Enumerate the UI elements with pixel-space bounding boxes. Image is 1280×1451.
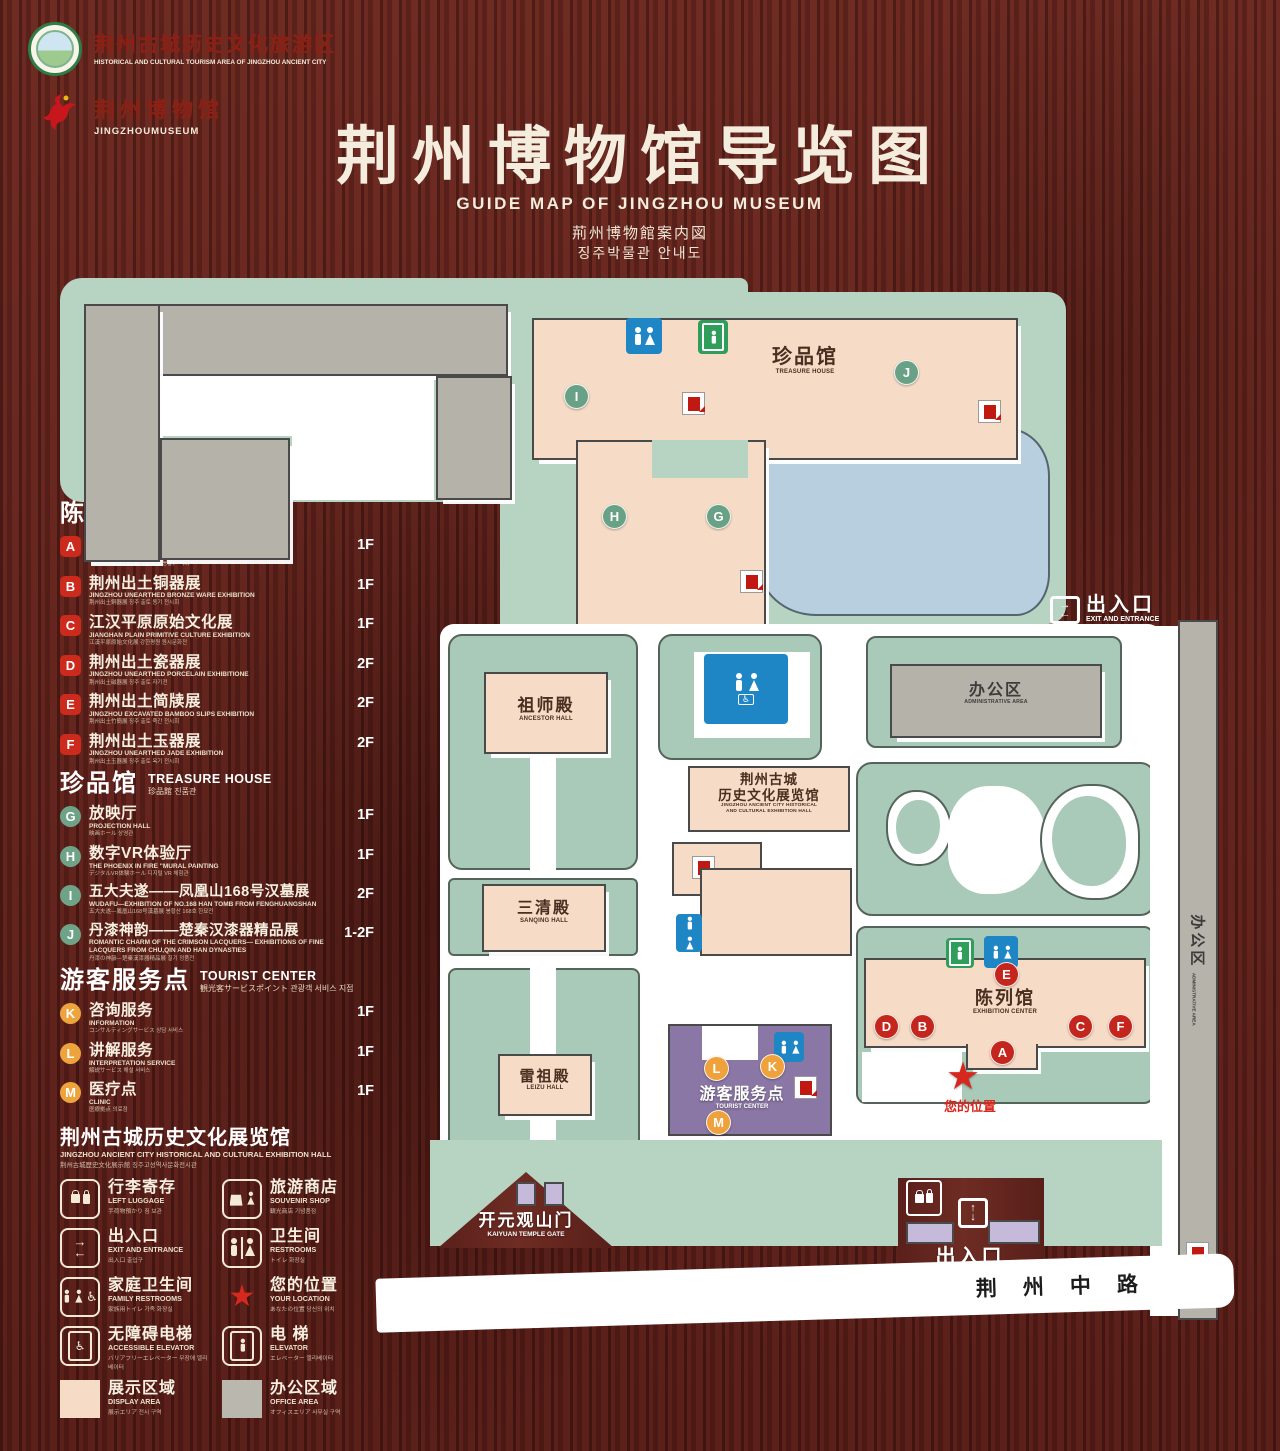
item-title: 讲解服务 xyxy=(89,1042,349,1060)
facility-restrooms: 卫生间 RESTROOMS トイレ 화장실 xyxy=(222,1228,374,1268)
tourism-area-logo-text: 荆州古城历史文化旅游区 HISTORICAL AND CULTURAL TOUR… xyxy=(94,28,394,66)
tourism-area-name-zh: 荆州古城历史文化旅游区 xyxy=(94,28,394,57)
section-title-sub: 観光客サービスポイント 관광객 서비스 지점 xyxy=(200,984,354,994)
facility-sub: オフィスエリア 사무실 구역 xyxy=(270,1407,340,1416)
facility-sub: 展示エリア 전시 구역 xyxy=(108,1407,176,1416)
bottom-gate-right xyxy=(988,1220,1040,1244)
item-floor: 2F xyxy=(357,886,374,902)
item-sub: デジタルVR体験ホール 디지털 VR 체험관 xyxy=(89,871,349,878)
map-marker-h: H xyxy=(602,504,627,529)
facility-zh: 行李寄存 xyxy=(108,1179,176,1197)
elevator-icon xyxy=(222,1326,262,1366)
facility-zh: 旅游商店 xyxy=(270,1179,338,1197)
admin-strip-zh: 办公区 xyxy=(1189,914,1206,968)
item-floor: 1F xyxy=(357,1044,374,1060)
facility-en: SOUVENIR SHOP xyxy=(270,1196,338,1205)
exhibition-center-label: 陈列馆 EXHIBITION CENTER xyxy=(910,988,1100,1016)
facility-zh: 您的位置 xyxy=(270,1277,338,1295)
poster-title-zh: 荆州博物馆导览图 xyxy=(270,106,1010,197)
luggage-icon xyxy=(60,1179,100,1219)
restrooms-icon xyxy=(626,318,662,354)
item-en: JINGZHOU EXCAVATED BAMBOO SLIPS EXHIBITI… xyxy=(89,711,349,719)
marker-badge-e: E xyxy=(60,694,81,715)
map-marker-f: F xyxy=(1108,1014,1133,1039)
item-title: 咨询服务 xyxy=(89,1002,349,1020)
item-sub: 五大夫遂—鳳凰山168号漢墓展 봉황산 168호 한묘전 xyxy=(89,909,349,916)
item-floor: 1F xyxy=(357,1083,374,1099)
history-hall-lower-wing xyxy=(700,868,852,956)
tourist-label-en: TOURIST CENTER xyxy=(672,1104,812,1111)
item-title: 江汉平原原始文化展 xyxy=(89,614,349,632)
map-marker-m: M xyxy=(706,1110,731,1135)
poster-title-ja: 荊州博物館案内図 xyxy=(270,222,1010,243)
item-title: 荆州出土玉器展 xyxy=(89,733,349,751)
elevator-icon xyxy=(698,320,728,354)
history-hall-note: 荆州古城历史文化展览馆 JINGZHOU ANCIENT CITY HISTOR… xyxy=(60,1126,374,1169)
facility-en: LEFT LUGGAGE xyxy=(108,1196,176,1205)
facility-elevator: 电 梯 ELEVATOR エレベーター 엘리베이터 xyxy=(222,1326,374,1371)
marker-badge-l: L xyxy=(60,1043,81,1064)
admin-right-zh: 办公区 xyxy=(890,682,1102,700)
item-title: 数字VR体验厅 xyxy=(89,845,349,863)
facility-point-icon xyxy=(682,392,705,415)
treasure-house-label: 珍品馆 TREASURE HOUSE xyxy=(720,346,890,376)
item-floor: 2F xyxy=(357,695,374,711)
facility-en: EXIT AND ENTRANCE xyxy=(108,1245,183,1254)
facility-en: OFFICE AREA xyxy=(270,1397,340,1406)
admin-building-right-arm xyxy=(436,376,512,500)
admin-right-en: ADMINISTRATIVE AREA xyxy=(890,700,1102,706)
sanqing-hall-label: 三清殿 SANQING HALL xyxy=(482,900,606,925)
tourism-area-logo-icon xyxy=(28,22,82,76)
legend-item-c: C 江汉平原原始文化展 JIANGHAN PLAIN PRIMITIVE CUL… xyxy=(60,614,374,647)
poster-title-ko: 징주박물관 안내도 xyxy=(270,243,1010,263)
facility-en: ACCESSIBLE ELEVATOR xyxy=(108,1343,212,1352)
legend-item-b: B 荆州出土铜器展 JINGZHOU UNEARTHED BRONZE WARE… xyxy=(60,575,374,608)
restrooms-icon xyxy=(676,914,702,952)
item-floor: 2F xyxy=(357,656,374,672)
item-en: ROMANTIC CHARM OF THE CRIMSON LACQUERS— … xyxy=(89,939,336,955)
leizu-label-en: LEIZU HALL xyxy=(498,1085,592,1092)
facility-zh: 家庭卫生间 xyxy=(108,1277,193,1295)
facility-left-luggage: 行李寄存 LEFT LUGGAGE 手荷物預かり 짐 보관 xyxy=(60,1179,212,1219)
museum-guide-map-poster: 荆州古城历史文化旅游区 HISTORICAL AND CULTURAL TOUR… xyxy=(0,0,1280,1451)
facility-en: RESTROOMS xyxy=(270,1245,321,1254)
garden-island-right xyxy=(1052,796,1126,886)
legend-item-m: M 医疗点 CLINIC 医療拠点 의료점 1F xyxy=(60,1081,374,1114)
ancestor-hall-label: 祖师殿 ANCESTOR HALL xyxy=(484,696,608,722)
exhibition-label-zh: 陈列馆 xyxy=(910,988,1100,1009)
facility-en: YOUR LOCATION xyxy=(270,1294,338,1303)
item-sub: 解説サービス 해설 서비스 xyxy=(89,1068,349,1075)
item-sub: 荆州出土銅器展 징주 출토 동기 전시회 xyxy=(89,600,349,607)
map-marker-l: L xyxy=(704,1056,729,1081)
treasure-label-en: TREASURE HOUSE xyxy=(720,369,890,376)
marker-badge-c: C xyxy=(60,615,81,636)
item-floor: 1F xyxy=(357,616,374,632)
item-floor: 1F xyxy=(357,577,374,593)
road-label: 荆州中路 xyxy=(975,1267,1164,1303)
elevator-icon xyxy=(946,938,974,968)
legend-item-f: F 荆州出土玉器展 JINGZHOU UNEARTHED JADE EXHIBI… xyxy=(60,733,374,766)
family-restrooms-icon: ♿ xyxy=(60,1277,100,1317)
map-marker-c: C xyxy=(1068,1014,1093,1039)
legend-section-tourist-center: 游客服务点 TOURIST CENTER 観光客サービスポイント 관광객 서비스… xyxy=(60,969,374,993)
sanqing-label-en: SANQING HALL xyxy=(482,918,606,925)
tourist-center-notch xyxy=(702,1026,758,1060)
restrooms-icon xyxy=(222,1228,262,1268)
kaiyuan-gate-en: KAIYUAN TEMPLE GATE xyxy=(438,1231,614,1238)
facility-sub: トイレ 화장실 xyxy=(270,1255,321,1264)
treasure-label-zh: 珍品馆 xyxy=(720,346,890,369)
marker-badge-d: D xyxy=(60,655,81,676)
facility-sub: 観光商店 기념품점 xyxy=(270,1206,338,1215)
map-marker-j: J xyxy=(894,360,919,385)
facility-sub: エレベーター 엘리베이터 xyxy=(270,1353,333,1362)
legend-panel: 陈列馆 EXHIBITION CENTER 陳列館 진열관 A 《火中的凤凰》壁… xyxy=(60,496,374,1418)
item-en: JIANGHAN PLAIN PRIMITIVE CULTURE EXHIBIT… xyxy=(89,632,349,640)
facility-your-location: ★ 您的位置 YOUR LOCATION あなたの位置 당신의 위치 xyxy=(222,1277,374,1317)
facility-family-restrooms: ♿ 家庭卫生间 FAMILY RESTROOMS 家族用トイレ 가족 화장실 xyxy=(60,1277,212,1317)
exit-entrance-icon: →← xyxy=(1050,596,1080,624)
exit-entrance-icon: ↑↓ xyxy=(958,1198,988,1228)
facility-sub: 手荷物預かり 짐 보관 xyxy=(108,1206,176,1215)
admin-strip-building: 办公区 ADMINISTRATIVE AREA xyxy=(1178,620,1218,1320)
leizu-hall-label: 雷祖殿 LEIZU HALL xyxy=(498,1068,592,1092)
facility-sub: バリアフリーエレベーター 무장애 엘리베이터 xyxy=(108,1353,212,1371)
facility-en: DISPLAY AREA xyxy=(108,1397,176,1406)
item-title: 荆州出土瓷器展 xyxy=(89,654,349,672)
office-area-swatch xyxy=(222,1380,262,1418)
item-sub: 丹漆の神韻—楚秦漢漆器精品展 칠기 정품전 xyxy=(89,956,336,963)
tourist-center-label: 游客服务点 TOURIST CENTER xyxy=(672,1086,812,1110)
map-marker-d: D xyxy=(874,1014,899,1039)
item-sub: 江漢平原原始文化展 강한평원 원시문화전 xyxy=(89,640,349,647)
exhibition-label-en: EXHIBITION CENTER xyxy=(910,1009,1100,1016)
hall-note-en: JINGZHOU ANCIENT CITY HISTORICAL AND CUL… xyxy=(60,1150,374,1160)
item-en: JINGZHOU UNEARTHED JADE EXHIBITION xyxy=(89,750,349,758)
legend-item-l: L 讲解服务 INTERPRETATION SERVICE 解説サービス 해설 … xyxy=(60,1042,374,1075)
admin-right-label: 办公区 ADMINISTRATIVE AREA xyxy=(890,682,1102,706)
legend-item-k: K 咨询服务 INFORMATION コンサルティングサービス 상담 서비스 1… xyxy=(60,1002,374,1035)
admin-strip-en: ADMINISTRATIVE AREA xyxy=(1192,973,1197,1026)
museum-logo-bird-icon xyxy=(42,90,82,143)
treasure-house-green-notch xyxy=(652,440,748,478)
item-sub: 医療拠点 의료점 xyxy=(89,1107,349,1114)
section-title-en: TOURIST CENTER xyxy=(200,970,354,984)
gate-post-right xyxy=(544,1182,564,1206)
facility-sub: 家族用トイレ 가족 화장실 xyxy=(108,1304,193,1313)
item-title: 荆州出土简牍展 xyxy=(89,693,349,711)
accessible-elevator-icon: ♿ xyxy=(60,1326,100,1366)
section-title-en: TREASURE HOUSE xyxy=(148,773,272,787)
marker-badge-i: I xyxy=(60,885,81,906)
facility-exit-entrance: →← 出入口 EXIT AND ENTRANCE 出入口 출입구 xyxy=(60,1228,212,1268)
poster-title-en: GUIDE MAP OF JINGZHOU MUSEUM xyxy=(270,194,1010,214)
kaiyuan-gate-zh: 开元观山门 xyxy=(438,1212,614,1231)
leizu-label-zh: 雷祖殿 xyxy=(498,1068,592,1085)
admin-building-lower-block xyxy=(160,438,290,560)
item-en: JINGZHOU UNEARTHED PORCELAIN EXHIBITIONE xyxy=(89,671,349,679)
tourism-area-name-en: HISTORICAL AND CULTURAL TOURISM AREA OF … xyxy=(94,59,394,66)
facility-zh: 电 梯 xyxy=(270,1326,333,1344)
item-floor: 1F xyxy=(357,847,374,863)
treasure-house-building xyxy=(532,318,1018,460)
legend-item-d: D 荆州出土瓷器展 JINGZHOU UNEARTHED PORCELAIN E… xyxy=(60,654,374,687)
map-marker-k: K xyxy=(760,1054,785,1079)
marker-badge-j: J xyxy=(60,924,81,945)
map-marker-e: E xyxy=(994,962,1019,987)
history-hall-en2: AND CULTURAL EXHIBITION HALL xyxy=(688,809,850,815)
item-title: 丹漆神韵——楚秦汉漆器精品展 xyxy=(89,923,336,940)
legend-item-g: G 放映厅 PROJECTION HALL 映画ホール 상영관 1F xyxy=(60,805,374,838)
section-title-zh: 游客服务点 xyxy=(60,969,190,993)
restrooms-accessible-icon: ♿ xyxy=(704,654,788,724)
item-sub: 映画ホール 상영관 xyxy=(89,831,349,838)
section-title-zh: 珍品馆 xyxy=(60,772,138,796)
tourist-label-zh: 游客服务点 xyxy=(672,1086,812,1104)
item-en: THE PHOENIX IN FIRE "MURAL PAINTING xyxy=(89,863,349,871)
facility-accessible-elevator: ♿ 无障碍电梯 ACCESSIBLE ELEVATOR バリアフリーエレベーター… xyxy=(60,1326,212,1371)
gate-post-left xyxy=(516,1182,536,1206)
item-floor: 1F xyxy=(357,807,374,823)
admin-courtyard-lower xyxy=(292,378,434,500)
facility-zh: 卫生间 xyxy=(270,1228,321,1246)
marker-badge-a: A xyxy=(60,536,81,557)
marker-badge-b: B xyxy=(60,576,81,597)
facility-zh: 出入口 xyxy=(108,1228,183,1246)
marker-badge-h: H xyxy=(60,846,81,867)
facility-zh: 无障碍电梯 xyxy=(108,1326,212,1344)
map-marker-b: B xyxy=(910,1014,935,1039)
legend-section-treasure-house: 珍品馆 TREASURE HOUSE 珍品館 진품관 xyxy=(60,772,374,796)
section-title-sub: 珍品館 진품관 xyxy=(148,787,272,797)
path xyxy=(530,756,556,870)
map-marker-a: A xyxy=(990,1040,1015,1065)
history-hall-label: 荆州古城 历史文化展览馆 JINGZHOU ANCIENT CITY HISTO… xyxy=(688,772,850,814)
item-floor: 1F xyxy=(357,1004,374,1020)
facility-sub: あなたの位置 당신의 위치 xyxy=(270,1304,338,1313)
item-en: CLINIC xyxy=(89,1099,349,1107)
luggage-check-icon xyxy=(906,1180,942,1216)
item-floor: 1-2F xyxy=(344,925,374,941)
facility-souvenir-shop: 旅游商店 SOUVENIR SHOP 観光商店 기념품점 xyxy=(222,1179,374,1219)
display-area-swatch xyxy=(60,1380,100,1418)
item-sub: 荆州出土玉器展 징주 출토 옥기 전시회 xyxy=(89,759,349,766)
legend-item-j: J 丹漆神韵——楚秦汉漆器精品展 ROMANTIC CHARM OF THE C… xyxy=(60,923,374,963)
bottom-gate-left xyxy=(906,1222,954,1244)
map-marker-g: G xyxy=(706,504,731,529)
history-hall-zh1: 荆州古城 xyxy=(688,772,850,788)
ancestor-label-zh: 祖师殿 xyxy=(484,696,608,716)
item-title: 放映厅 xyxy=(89,805,349,823)
hall-note-zh: 荆州古城历史文化展览馆 xyxy=(60,1126,374,1150)
item-sub: 荆州出土竹簡展 징주 출토 죽간 전시회 xyxy=(89,719,349,726)
item-en: INTERPRETATION SERVICE xyxy=(89,1060,349,1068)
admin-strip-label: 办公区 ADMINISTRATIVE AREA xyxy=(1188,914,1209,1025)
ancestor-label-en: ANCESTOR HALL xyxy=(484,716,608,723)
facility-en: ELEVATOR xyxy=(270,1343,333,1352)
path xyxy=(530,968,556,1054)
legend-item-h: H 数字VR体验厅 THE PHOENIX IN FIRE "MURAL PAI… xyxy=(60,845,374,878)
history-hall-zh2: 历史文化展览馆 xyxy=(688,788,850,804)
facility-en: FAMILY RESTROOMS xyxy=(108,1294,193,1303)
facility-zh: 办公区域 xyxy=(270,1380,340,1398)
facility-point-icon xyxy=(978,400,1001,423)
item-sub: 荆州出土磁器展 징주 출토 자기전 xyxy=(89,680,349,687)
souvenir-shop-icon xyxy=(222,1179,262,1219)
facility-zh: 展示区域 xyxy=(108,1380,176,1398)
facility-legend-grid: 行李寄存 LEFT LUGGAGE 手荷物預かり 짐 보관 旅游商店 SOUVE… xyxy=(60,1179,374,1418)
facility-point-icon xyxy=(794,1076,817,1099)
facility-sub: 出入口 출입구 xyxy=(108,1255,183,1264)
item-title: 荆州出土铜器展 xyxy=(89,575,349,593)
your-location-label: 您的位置 xyxy=(920,1096,1020,1115)
admin-building-left-wing xyxy=(84,304,160,562)
exit-entrance-icon: →← xyxy=(60,1228,100,1268)
item-title: 医疗点 xyxy=(89,1081,349,1099)
item-en: INFORMATION xyxy=(89,1020,349,1028)
item-title: 五大夫遂——凤凰山168号汉墓展 xyxy=(89,884,349,901)
item-floor: 2F xyxy=(357,735,374,751)
legend-item-i: I 五大夫遂——凤凰山168号汉墓展 WUDAFU—EXHIBITION OF … xyxy=(60,884,374,915)
legend-item-e: E 荆州出土简牍展 JINGZHOU EXCAVATED BAMBOO SLIP… xyxy=(60,693,374,726)
facility-point-icon xyxy=(740,570,763,593)
road-jingzhou-middle: 荆州中路 xyxy=(375,1253,1234,1332)
item-en: PROJECTION HALL xyxy=(89,823,349,831)
sanqing-label-zh: 三清殿 xyxy=(482,900,606,918)
item-en: WUDAFU—EXHIBITION OF NO.168 HAN TOMB FRO… xyxy=(89,901,349,909)
your-location-star-icon: ★ xyxy=(946,1058,980,1096)
your-location-star-icon: ★ xyxy=(222,1277,262,1317)
map-marker-i: I xyxy=(564,384,589,409)
marker-badge-g: G xyxy=(60,806,81,827)
item-sub: コンサルティングサービス 상담 서비스 xyxy=(89,1028,349,1035)
item-floor: 1F xyxy=(357,537,374,553)
marker-badge-k: K xyxy=(60,1003,81,1024)
hall-note-sub: 荆州古城歴史文化展示館 징주고성역사문화전시관 xyxy=(60,1160,374,1169)
facility-office-area: 办公区域 OFFICE AREA オフィスエリア 사무실 구역 xyxy=(222,1380,374,1418)
kaiyuan-gate-label: 开元观山门 KAIYUAN TEMPLE GATE xyxy=(438,1212,614,1238)
marker-badge-f: F xyxy=(60,734,81,755)
facility-display-area: 展示区域 DISPLAY AREA 展示エリア 전시 구역 xyxy=(60,1380,212,1418)
marker-badge-m: M xyxy=(60,1082,81,1103)
entrance-right-zh: 出入口 xyxy=(1086,594,1226,616)
